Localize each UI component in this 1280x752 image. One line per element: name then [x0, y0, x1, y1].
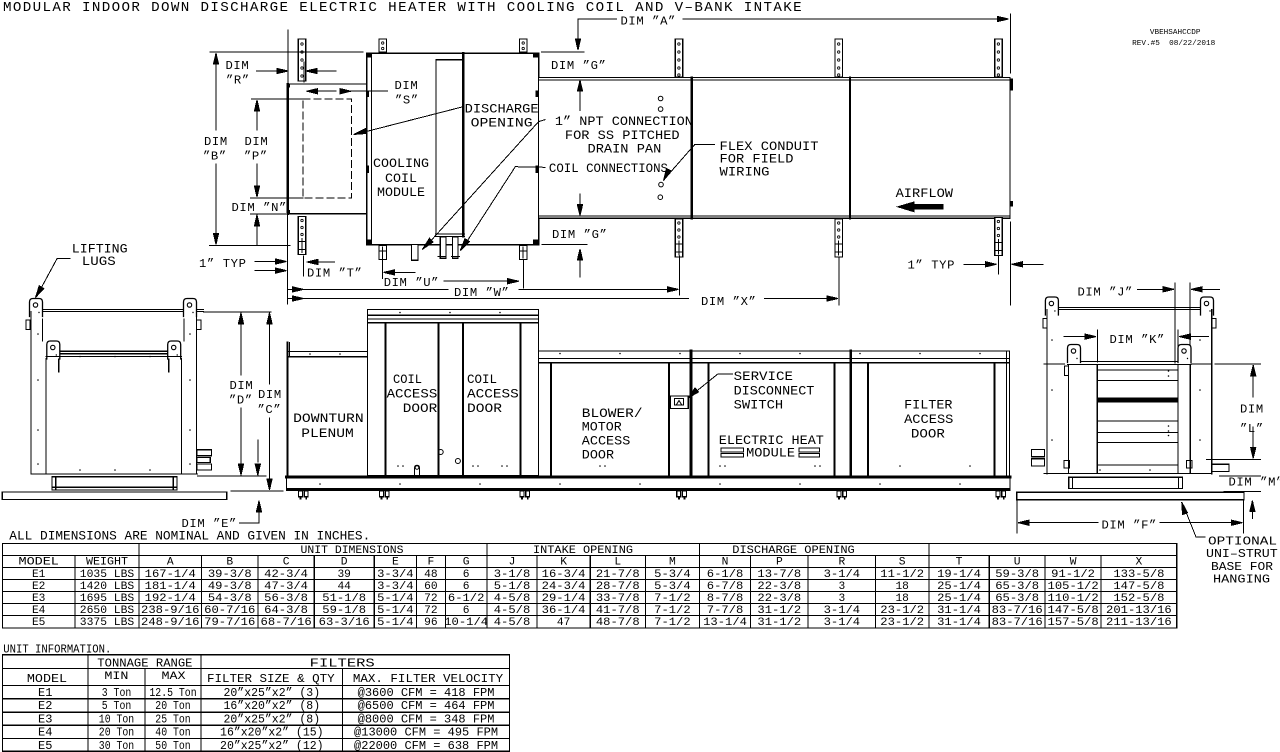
svg-text:31-1/4: 31-1/4	[937, 605, 981, 617]
svg-text:96: 96	[424, 617, 437, 629]
svg-text:DIM ”K”: DIM ”K”	[1110, 333, 1165, 347]
svg-text:@13000 CFM = 495 FPM: @13000 CFM = 495 FPM	[354, 726, 498, 740]
svg-text:DOOR: DOOR	[467, 402, 503, 416]
svg-text:MIN: MIN	[104, 671, 128, 683]
svg-text:20”x25”x2” (3): 20”x25”x2” (3)	[224, 686, 321, 700]
svg-text:20 Ton: 20 Ton	[155, 699, 190, 713]
svg-text:UNIT DIMENSIONS: UNIT DIMENSIONS	[301, 545, 404, 557]
svg-text:DOWNTURN: DOWNTURN	[293, 412, 364, 426]
svg-text:R: R	[838, 557, 845, 569]
svg-text:4-5/8: 4-5/8	[494, 593, 531, 605]
svg-text:AIRFLOW: AIRFLOW	[896, 186, 954, 201]
svg-text:E2: E2	[32, 581, 45, 593]
svg-text:DIM: DIM	[230, 379, 254, 393]
svg-text:T: T	[956, 557, 963, 569]
svg-text:16”x20”x2” (8): 16”x20”x2” (8)	[224, 699, 321, 713]
svg-text:24-3/4: 24-3/4	[542, 581, 586, 593]
svg-text:51-1/8: 51-1/8	[322, 593, 366, 605]
svg-text:”C”: ”C”	[258, 403, 282, 417]
svg-text:39-3/8: 39-3/8	[208, 569, 252, 581]
svg-text:248-9/16: 248-9/16	[141, 617, 199, 629]
svg-text:INTAKE OPENING: INTAKE OPENING	[533, 545, 633, 557]
svg-text:SERVICE: SERVICE	[734, 370, 793, 384]
svg-text:DIM: DIM	[395, 79, 419, 93]
svg-text:1” TYP: 1” TYP	[199, 257, 246, 271]
svg-text:LUGS: LUGS	[82, 255, 116, 269]
svg-text:OPENING: OPENING	[471, 117, 533, 131]
svg-text:M: M	[669, 557, 676, 569]
svg-text:DRAIN PAN: DRAIN PAN	[588, 143, 662, 157]
svg-text:DIM ”X”: DIM ”X”	[701, 295, 756, 309]
svg-text:DIM ”T”: DIM ”T”	[307, 267, 362, 281]
svg-text:E5: E5	[38, 739, 52, 752]
svg-text:4-5/8: 4-5/8	[494, 617, 531, 629]
svg-text:33-7/8: 33-7/8	[596, 593, 640, 605]
svg-text:W: W	[1070, 557, 1077, 569]
svg-text:167-1/4: 167-1/4	[145, 569, 196, 581]
svg-text:”D”: ”D”	[229, 394, 253, 408]
svg-text:28-7/8: 28-7/8	[596, 581, 640, 593]
svg-text:13-7/8: 13-7/8	[757, 569, 801, 581]
svg-text:5-3/4: 5-3/4	[654, 569, 691, 581]
svg-text:S: S	[899, 557, 906, 569]
svg-text:DIM ”W”: DIM ”W”	[454, 286, 509, 300]
svg-text:157-5/8: 157-5/8	[1048, 617, 1099, 629]
svg-text:56-3/8: 56-3/8	[264, 593, 308, 605]
svg-text:ALL DIMENSIONS ARE NOMINAL AND: ALL DIMENSIONS ARE NOMINAL AND GIVEN IN …	[9, 529, 370, 544]
svg-text:7-1/2: 7-1/2	[654, 605, 691, 617]
svg-text:41-7/8: 41-7/8	[596, 605, 640, 617]
svg-text:192-1/4: 192-1/4	[145, 593, 196, 605]
svg-text:”L”: ”L”	[1240, 422, 1264, 436]
svg-text:DISCONNECT: DISCONNECT	[734, 384, 815, 398]
svg-text:60: 60	[424, 581, 438, 593]
svg-text:3-1/4: 3-1/4	[824, 617, 861, 629]
svg-text:36-1/4: 36-1/4	[542, 605, 586, 617]
svg-text:ACCESS: ACCESS	[582, 435, 631, 449]
svg-text:MODEL: MODEL	[27, 672, 67, 686]
svg-text:4-5/8: 4-5/8	[494, 605, 531, 617]
svg-text:DISCHARGE: DISCHARGE	[465, 103, 539, 117]
svg-text:DIM: DIM	[245, 135, 269, 149]
svg-text:@3600 CFM = 418 FPM: @3600 CFM = 418 FPM	[358, 686, 495, 700]
svg-text:E3: E3	[38, 713, 52, 727]
svg-text:64-3/8: 64-3/8	[264, 605, 308, 617]
svg-text:E: E	[392, 557, 399, 569]
svg-text:13-1/4: 13-1/4	[703, 617, 747, 629]
svg-text:91-1/2: 91-1/2	[1051, 569, 1095, 581]
svg-text:59-1/8: 59-1/8	[322, 605, 366, 617]
svg-text:FOR SS PITCHED: FOR SS PITCHED	[565, 129, 680, 143]
svg-text:22-3/8: 22-3/8	[757, 581, 801, 593]
svg-text:20 Ton: 20 Ton	[99, 726, 134, 740]
svg-text:65-3/8: 65-3/8	[995, 593, 1039, 605]
svg-text:3: 3	[838, 593, 845, 605]
svg-text:FILTER SIZE & QTY: FILTER SIZE & QTY	[207, 672, 335, 686]
svg-text:MAX: MAX	[162, 671, 186, 683]
svg-text:18: 18	[895, 593, 908, 605]
svg-text:181-1/4: 181-1/4	[145, 581, 196, 593]
svg-text:152-5/8: 152-5/8	[1113, 593, 1164, 605]
svg-text:3-3/4: 3-3/4	[377, 569, 414, 581]
svg-text:DIM: DIM	[258, 388, 282, 402]
svg-text:@8000 CFM = 348 FPM: @8000 CFM = 348 FPM	[358, 713, 495, 727]
svg-text:6-7/8: 6-7/8	[707, 581, 744, 593]
svg-text:ACCESS: ACCESS	[387, 388, 438, 402]
svg-text:8-7/8: 8-7/8	[707, 593, 744, 605]
svg-text:6-1/8: 6-1/8	[707, 569, 744, 581]
svg-text:J: J	[509, 557, 516, 569]
svg-text:5 Ton: 5 Ton	[102, 699, 132, 713]
svg-text:31-1/2: 31-1/2	[757, 605, 801, 617]
svg-text:7-1/2: 7-1/2	[654, 617, 691, 629]
svg-text:MODEL: MODEL	[19, 557, 60, 569]
svg-text:2650 LBS: 2650 LBS	[80, 605, 135, 617]
svg-text:3-1/4: 3-1/4	[824, 605, 861, 617]
svg-text:COIL: COIL	[393, 373, 422, 387]
svg-text:DIM: DIM	[1240, 403, 1264, 417]
svg-text:5-1/4: 5-1/4	[377, 605, 414, 617]
svg-text:25-1/4: 25-1/4	[937, 581, 981, 593]
svg-text:6-1/2: 6-1/2	[448, 593, 485, 605]
svg-text:TONNAGE RANGE: TONNAGE RANGE	[97, 656, 192, 670]
svg-text:21-7/8: 21-7/8	[596, 569, 640, 581]
svg-text:MODULE: MODULE	[746, 447, 795, 461]
svg-text:”R”: ”R”	[226, 74, 250, 88]
svg-text:39: 39	[337, 569, 350, 581]
svg-text:E5: E5	[32, 617, 45, 629]
svg-text:DIM: DIM	[204, 135, 228, 149]
svg-text:E4: E4	[38, 726, 52, 740]
svg-text:72: 72	[424, 593, 437, 605]
svg-text:5-1/4: 5-1/4	[377, 593, 414, 605]
svg-text:50 Ton: 50 Ton	[155, 739, 190, 752]
svg-text:49-3/8: 49-3/8	[208, 581, 252, 593]
svg-text:G: G	[463, 557, 470, 569]
svg-text:20”x25”x2” (8): 20”x25”x2” (8)	[224, 713, 321, 727]
svg-text:FILTERS: FILTERS	[310, 656, 375, 670]
svg-text:63-3/16: 63-3/16	[319, 617, 370, 629]
svg-text:E4: E4	[32, 605, 46, 617]
svg-text:C: C	[283, 557, 290, 569]
svg-text:72: 72	[424, 605, 437, 617]
svg-text:1035 LBS: 1035 LBS	[80, 569, 135, 581]
svg-text:201-13/16: 201-13/16	[1106, 605, 1172, 617]
svg-text:U: U	[1014, 557, 1021, 569]
svg-text:54-3/8: 54-3/8	[208, 593, 252, 605]
svg-text:110-1/2: 110-1/2	[1048, 593, 1099, 605]
svg-text:DIM ”A”: DIM ”A”	[621, 15, 676, 29]
svg-text:42-3/4: 42-3/4	[264, 569, 308, 581]
svg-text:P: P	[776, 557, 783, 569]
svg-text:12.5 Ton: 12.5 Ton	[149, 686, 196, 700]
svg-text:L: L	[614, 557, 621, 569]
svg-text:F: F	[428, 557, 435, 569]
svg-text:FILTER: FILTER	[904, 399, 953, 413]
svg-text:47: 47	[557, 617, 570, 629]
svg-text:MAX. FILTER VELOCITY: MAX. FILTER VELOCITY	[353, 672, 504, 686]
svg-text:COIL: COIL	[467, 373, 497, 387]
svg-text:59-3/8: 59-3/8	[995, 569, 1039, 581]
svg-text:”P”: ”P”	[244, 150, 268, 164]
svg-text:79-7/16: 79-7/16	[204, 617, 255, 629]
svg-text:COOLING: COOLING	[373, 157, 429, 171]
svg-text:16”x20”x2” (15): 16”x20”x2” (15)	[220, 726, 324, 740]
svg-text:”S”: ”S”	[395, 94, 419, 108]
svg-text:K: K	[560, 557, 567, 569]
svg-text:6: 6	[463, 581, 470, 593]
svg-text:1695 LBS: 1695 LBS	[80, 593, 135, 605]
svg-text:DIM ”U”: DIM ”U”	[384, 276, 439, 290]
svg-text:B: B	[226, 557, 233, 569]
svg-text:DIM ”N”: DIM ”N”	[232, 201, 287, 215]
svg-text:DOOR: DOOR	[582, 449, 615, 463]
svg-text:5-1/4: 5-1/4	[377, 617, 414, 629]
svg-text:6: 6	[463, 605, 470, 617]
svg-text:147-5/8: 147-5/8	[1113, 581, 1164, 593]
svg-text:48: 48	[424, 569, 437, 581]
svg-text:3 Ton: 3 Ton	[102, 686, 132, 700]
svg-text:HANGING: HANGING	[1213, 573, 1270, 587]
svg-text:X: X	[1136, 557, 1143, 569]
svg-text:SWITCH: SWITCH	[734, 399, 784, 413]
svg-text:105-1/2: 105-1/2	[1048, 581, 1099, 593]
svg-text:DIM ”M”: DIM ”M”	[1229, 476, 1280, 490]
svg-text:20”x25”x2” (12): 20”x25”x2” (12)	[220, 739, 324, 752]
svg-text:3-1/8: 3-1/8	[494, 569, 531, 581]
svg-text:BLOWER/: BLOWER/	[582, 407, 643, 421]
svg-text:83-7/16: 83-7/16	[992, 617, 1043, 629]
svg-text:44: 44	[337, 581, 351, 593]
svg-text:211-13/16: 211-13/16	[1106, 617, 1172, 629]
svg-text:DISCHARGE OPENING: DISCHARGE OPENING	[732, 545, 855, 557]
svg-text:40 Ton: 40 Ton	[155, 726, 190, 740]
svg-text:133-5/8: 133-5/8	[1113, 569, 1164, 581]
svg-text:@6500 CFM = 464 FPM: @6500 CFM = 464 FPM	[358, 699, 495, 713]
svg-text:10 Ton: 10 Ton	[99, 713, 134, 727]
svg-text:N: N	[722, 557, 729, 569]
svg-text:FOR FIELD: FOR FIELD	[720, 153, 794, 167]
svg-text:COIL: COIL	[385, 172, 417, 186]
svg-text:3-1/4: 3-1/4	[824, 569, 861, 581]
svg-text:REV.#5 08/22/2018: REV.#5 08/22/2018	[1132, 40, 1216, 48]
svg-text:31-1/4: 31-1/4	[937, 617, 981, 629]
svg-text:30 Ton: 30 Ton	[99, 739, 134, 752]
svg-text:DIM ”G”: DIM ”G”	[551, 59, 606, 73]
svg-text:3-3/4: 3-3/4	[377, 581, 414, 593]
svg-text:68-7/16: 68-7/16	[261, 617, 312, 629]
svg-text:”B”: ”B”	[203, 150, 227, 164]
svg-text:47-3/4: 47-3/4	[264, 581, 308, 593]
svg-text:DIM: DIM	[226, 59, 250, 73]
svg-text:6: 6	[463, 569, 470, 581]
svg-text:23-1/2: 23-1/2	[880, 605, 924, 617]
svg-text:WEIGHT: WEIGHT	[86, 557, 128, 569]
svg-text:COIL CONNECTIONS: COIL CONNECTIONS	[549, 162, 668, 176]
svg-text:5-1/8: 5-1/8	[494, 581, 531, 593]
svg-text:@22000 CFM = 638 FPM: @22000 CFM = 638 FPM	[354, 739, 498, 752]
svg-text:DIM ”G”: DIM ”G”	[552, 228, 607, 242]
svg-text:DIM ”J”: DIM ”J”	[1078, 286, 1133, 300]
svg-text:DIM ”F”: DIM ”F”	[1102, 519, 1157, 533]
svg-text:25 Ton: 25 Ton	[155, 713, 190, 727]
svg-text:31-1/2: 31-1/2	[757, 617, 801, 629]
svg-text:MODULE: MODULE	[377, 186, 425, 200]
svg-text:7-1/2: 7-1/2	[654, 593, 691, 605]
svg-text:29-1/4: 29-1/4	[542, 593, 586, 605]
svg-text:E2: E2	[38, 699, 52, 713]
svg-text:E1: E1	[32, 569, 46, 581]
svg-text:MOTOR: MOTOR	[582, 421, 622, 435]
svg-text:60-7/16: 60-7/16	[204, 605, 255, 617]
svg-text:E3: E3	[32, 593, 45, 605]
svg-text:65-3/8: 65-3/8	[995, 581, 1039, 593]
svg-text:83-7/16: 83-7/16	[992, 605, 1043, 617]
svg-text:22-3/8: 22-3/8	[757, 593, 801, 605]
svg-text:25-1/4: 25-1/4	[937, 593, 981, 605]
svg-text:DOOR: DOOR	[403, 402, 438, 416]
svg-text:23-1/2: 23-1/2	[880, 617, 924, 629]
svg-text:3375 LBS: 3375 LBS	[80, 617, 135, 629]
svg-text:48-7/8: 48-7/8	[596, 617, 640, 629]
svg-text:18: 18	[895, 581, 908, 593]
svg-text:E1: E1	[38, 686, 52, 700]
svg-text:16-3/4: 16-3/4	[542, 569, 586, 581]
svg-text:WIRING: WIRING	[720, 166, 770, 180]
svg-text:ACCESS: ACCESS	[904, 413, 953, 427]
svg-text:MODULAR INDOOR DOWN DISCHARGE: MODULAR INDOOR DOWN DISCHARGE ELECTRIC H…	[3, 0, 804, 16]
svg-text:DOOR: DOOR	[911, 427, 945, 441]
svg-text:1” NPT CONNECTION: 1” NPT CONNECTION	[555, 115, 693, 129]
svg-text:VBEHSAHCCDP: VBEHSAHCCDP	[1150, 29, 1201, 37]
svg-text:1” TYP: 1” TYP	[908, 259, 955, 273]
svg-text:1420 LBS: 1420 LBS	[80, 581, 135, 593]
svg-text:A: A	[167, 557, 174, 569]
svg-text:PLENUM: PLENUM	[301, 427, 354, 441]
svg-text:3: 3	[838, 581, 845, 593]
svg-text:D: D	[341, 557, 348, 569]
svg-text:11-1/2: 11-1/2	[880, 569, 924, 581]
svg-text:19-1/4: 19-1/4	[937, 569, 981, 581]
svg-text:ACCESS: ACCESS	[467, 388, 519, 402]
svg-text:147-5/8: 147-5/8	[1048, 605, 1099, 617]
svg-text:7-7/8: 7-7/8	[707, 605, 744, 617]
svg-text:10-1/4: 10-1/4	[444, 617, 488, 629]
svg-text:238-9/16: 238-9/16	[141, 605, 199, 617]
svg-text:5-3/4: 5-3/4	[654, 581, 691, 593]
